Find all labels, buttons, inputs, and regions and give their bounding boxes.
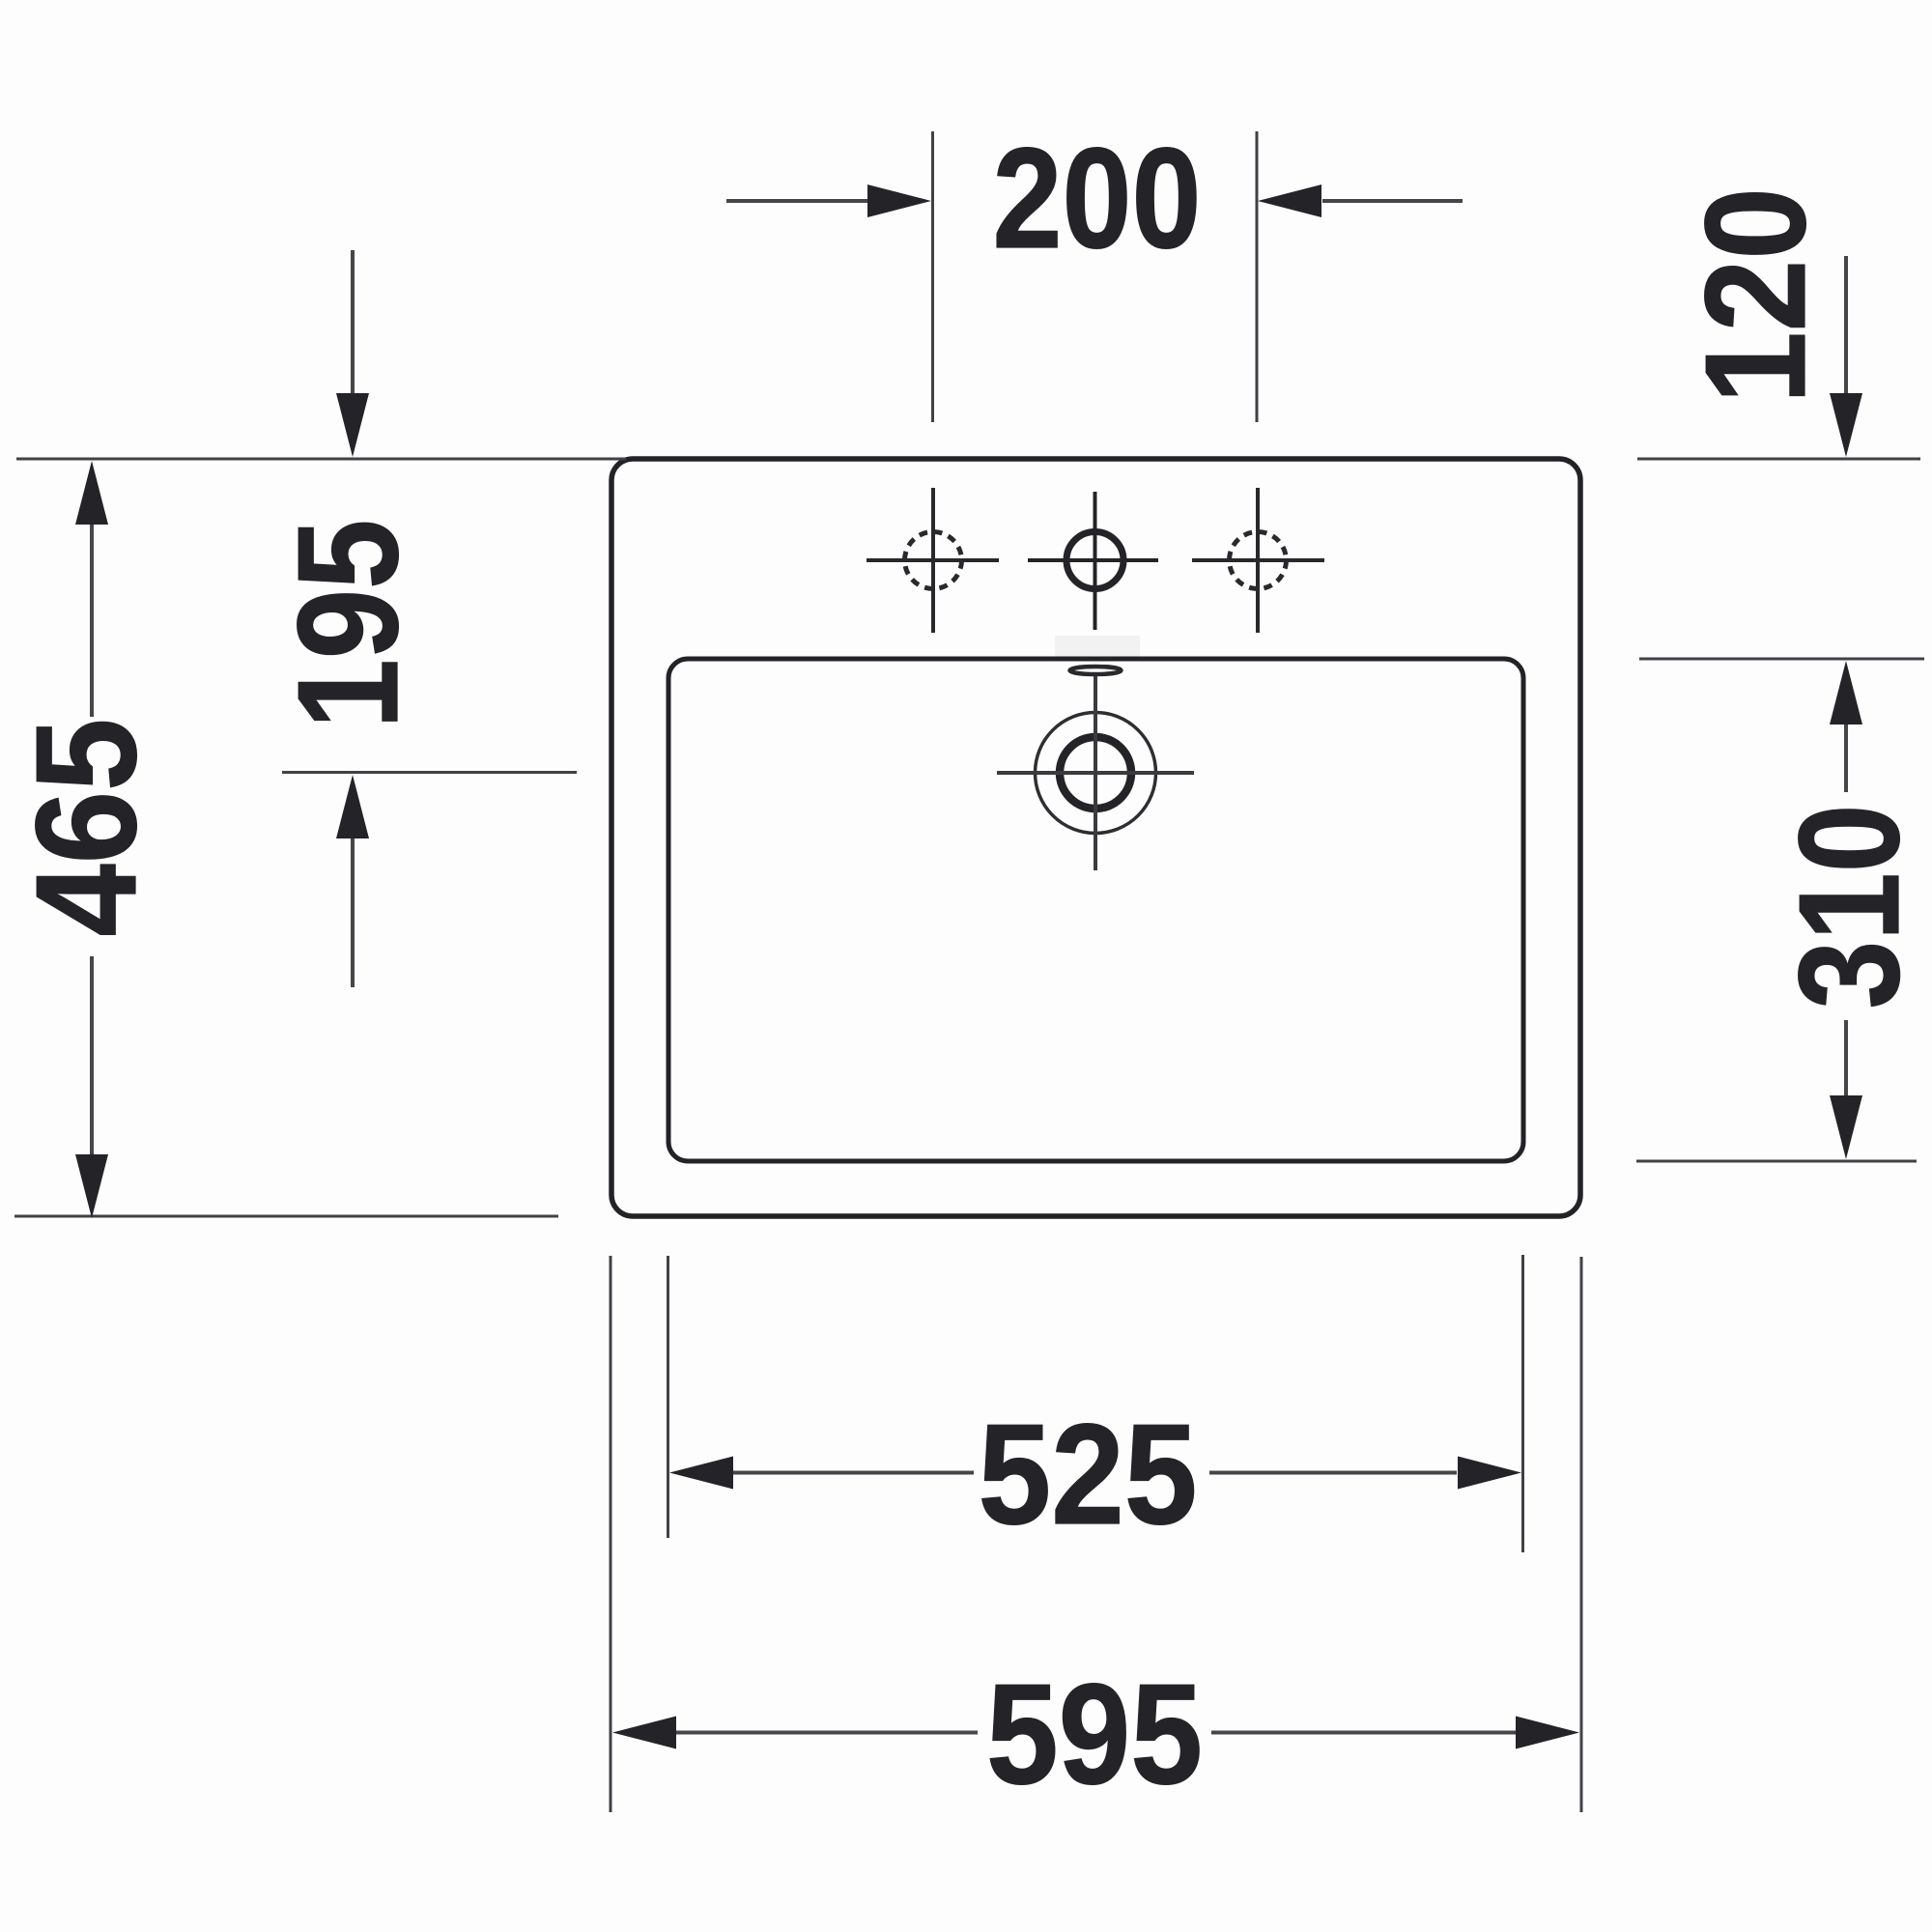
svg-text:525: 525 [979, 1395, 1198, 1554]
svg-text:120: 120 [1676, 187, 1835, 404]
svg-text:195: 195 [269, 520, 428, 729]
svg-text:200: 200 [993, 119, 1202, 278]
svg-text:595: 595 [986, 1655, 1203, 1814]
svg-text:465: 465 [7, 719, 166, 937]
svg-text:310: 310 [1770, 805, 1929, 1009]
